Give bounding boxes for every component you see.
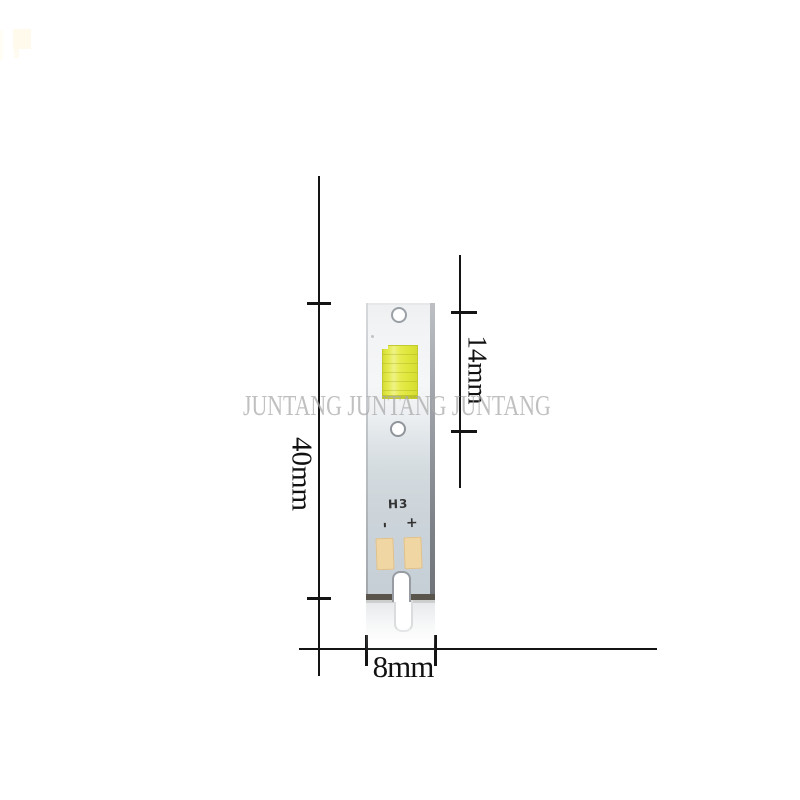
led-pcb-board: H3 - + [366,303,435,600]
corner-flag-mark [13,29,31,49]
dimension-line-8mm [299,648,657,650]
dimension-label-8mm: 8mm [373,651,434,682]
watermark-text: JUNTANG JUNTANG JUNTANG [243,393,551,421]
polarity-plus-mark: + [406,515,418,531]
dimension-tick [307,302,331,305]
dimension-line-40mm [318,176,320,676]
board-top-edge [366,303,435,305]
corner-flag-stem [14,49,19,58]
mounting-hole-top [391,307,407,323]
slot-reflection [394,600,413,632]
board-reflection [366,600,435,654]
dimension-line-14mm [459,255,461,488]
edge-artifact-mark [0,30,3,60]
dimension-label-40mm: 40mm [287,437,316,511]
bottom-slot-notch [392,571,411,602]
board-right-edge-shadow [430,303,435,600]
silkscreen-model-label: H3 [388,497,409,512]
board-left-edge [366,303,368,600]
solder-pad-positive [403,537,422,570]
led-chip-corner-notch [381,344,388,349]
mounting-hole-bottom [390,421,406,437]
dimension-tick [451,311,477,314]
polarity-minus-mark: - [377,522,393,528]
dimension-tick [307,597,331,600]
solder-pad-negative [375,538,394,571]
board-speck [371,335,374,338]
product-spec-image: { "watermark": { "text": "JUNTANG JUNTAN… [0,0,800,800]
dimension-tick [451,430,477,433]
